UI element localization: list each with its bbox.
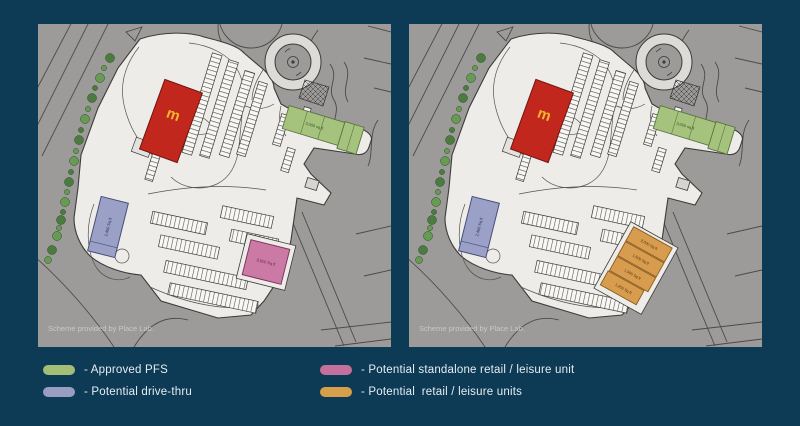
legend-label-standalone-retail: - Potential standalone retail / leisure … <box>361 364 574 376</box>
legend-swatch-drive-thru <box>43 387 75 397</box>
legend-item-standalone-retail: - Potential standalone retail / leisure … <box>320 362 574 378</box>
panel-right-scheme: 2,000 Sq ft 1,500 Sq ft 1,500 Sq ft 1,25… <box>409 24 762 347</box>
panel-left-scheme: 3,620 Sq ft <box>38 24 391 347</box>
legend-swatch-standalone-retail <box>320 365 352 375</box>
legend-item-retail-units: - Potential retail / leisure units <box>320 384 522 400</box>
legend-label-drive-thru: - Potential drive-thru <box>84 386 192 398</box>
slide-background: { "plan": { "attribution": "Scheme provi… <box>0 0 800 426</box>
site-plan-base <box>38 24 391 347</box>
legend-swatch-approved-pfs <box>43 365 75 375</box>
legend: - Approved PFS - Potential drive-thru - … <box>0 355 800 425</box>
site-plan-base <box>409 24 762 347</box>
legend-item-approved-pfs: - Approved PFS <box>43 362 168 378</box>
legend-label-approved-pfs: - Approved PFS <box>84 364 168 376</box>
legend-item-drive-thru: - Potential drive-thru <box>43 384 192 400</box>
legend-label-retail-units: - Potential retail / leisure units <box>361 386 522 398</box>
slide: m 3,000 sq ft 2,400 Sq ft Scheme provide… <box>0 0 800 426</box>
legend-swatch-retail-units <box>320 387 352 397</box>
